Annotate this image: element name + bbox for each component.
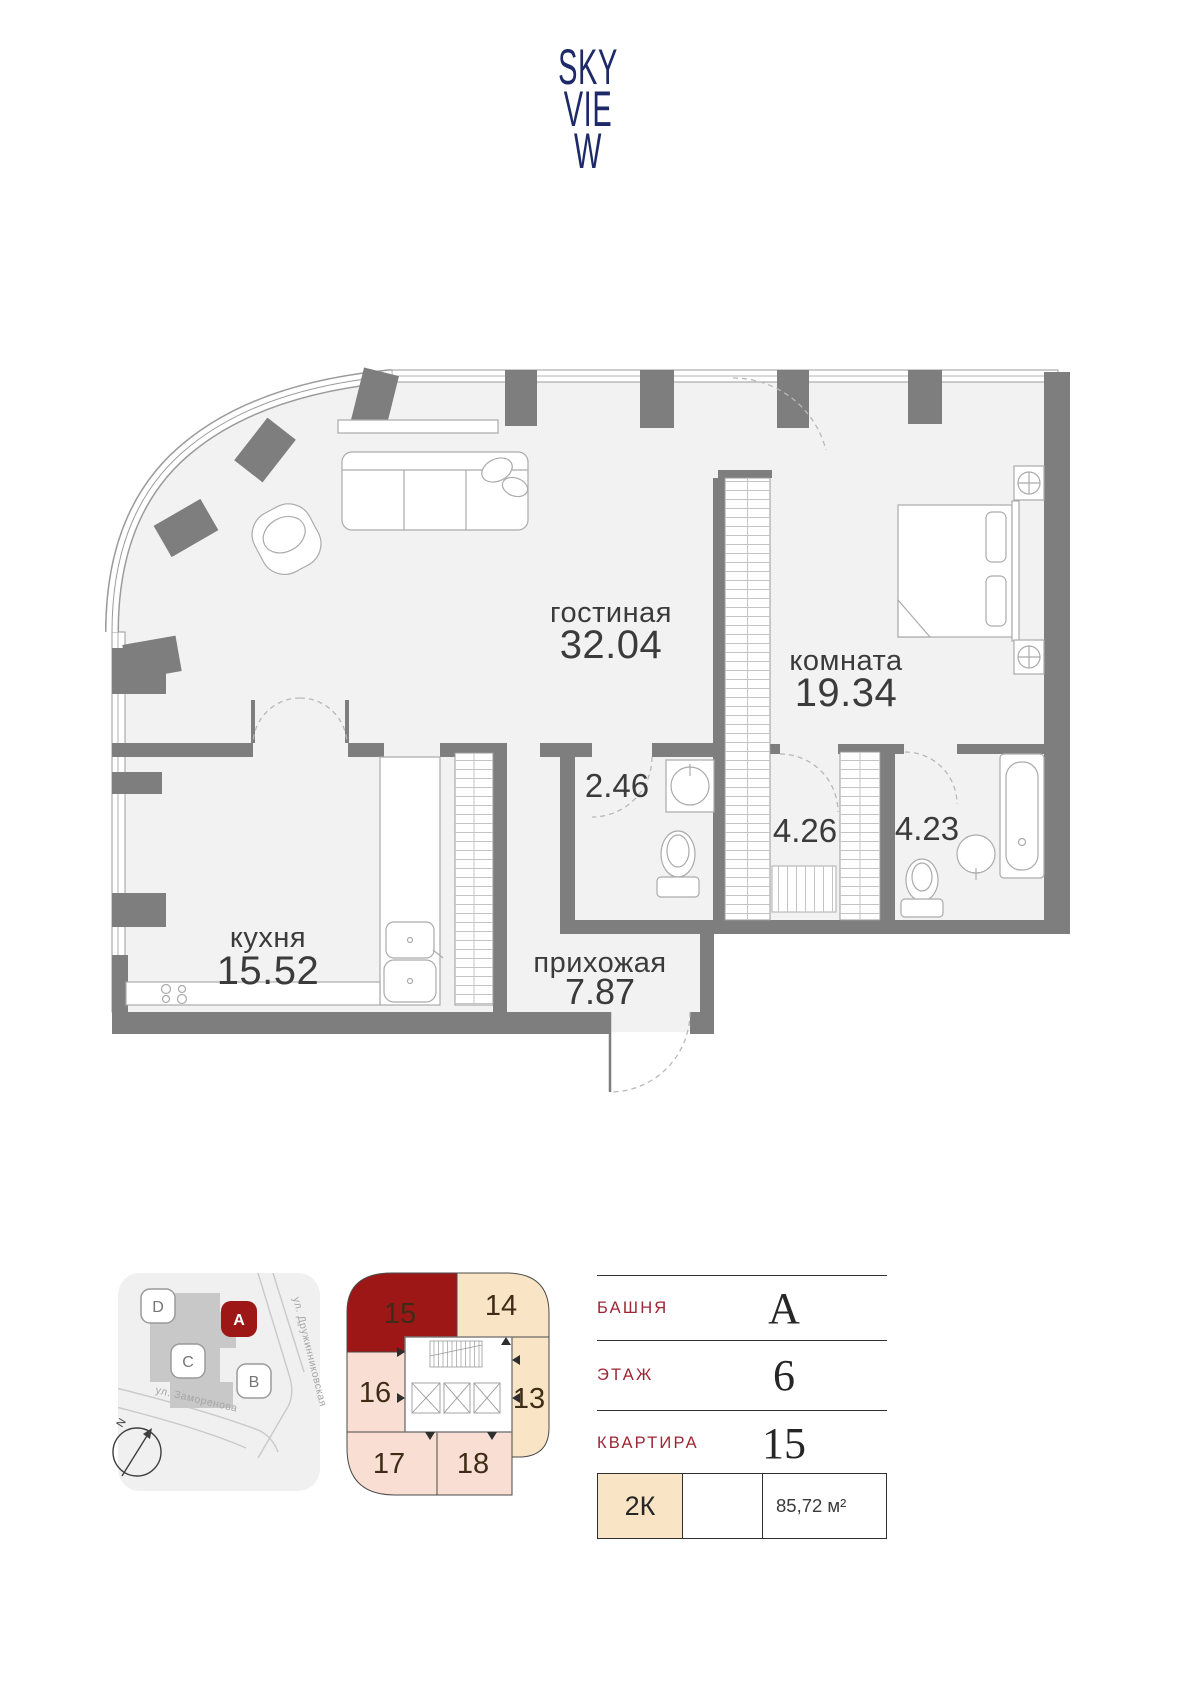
building-badge-b[interactable]: B: [237, 1364, 271, 1398]
table-row-apartment: КВАРТИРА 15: [597, 1410, 887, 1476]
elevators-icon: [412, 1383, 500, 1413]
apartment-type-badge: 2К: [598, 1474, 683, 1538]
tower-label: БАШНЯ: [597, 1299, 668, 1318]
svg-text:B: B: [249, 1374, 260, 1391]
building-core: [397, 1337, 520, 1440]
apartment-floor-plan: гостиная 32.04 комната 19.34 кухня 15.52…: [95, 330, 1085, 1100]
tower-value: А: [725, 1283, 843, 1334]
unit-number-16: 16: [359, 1377, 391, 1409]
table-row-tower: БАШНЯ А: [597, 1275, 887, 1340]
room-area-bathroom: 4.23: [895, 810, 959, 847]
total-area-value: 85,72 м²: [763, 1474, 886, 1538]
building-badge-a-selected[interactable]: A: [221, 1301, 257, 1337]
tv-console: [338, 420, 498, 433]
building-badge-c[interactable]: C: [171, 1344, 205, 1378]
svg-text:D: D: [152, 1299, 164, 1316]
floor-label: ЭТАЖ: [597, 1366, 653, 1385]
floor-value: 6: [725, 1350, 843, 1401]
room-area-hall: 7.87: [565, 971, 635, 1012]
building-badge-d[interactable]: D: [141, 1289, 175, 1323]
summary-box: 2К 85,72 м²: [597, 1473, 887, 1539]
logo-line-3: W: [544, 130, 632, 172]
room-area-wc: 2.46: [585, 767, 649, 804]
room-area-kitchen: 15.52: [217, 949, 320, 993]
apartment-label: КВАРТИРА: [597, 1434, 699, 1453]
skyview-logo: SKY VIE W: [512, 46, 664, 172]
apartment-details-table: БАШНЯ А ЭТАЖ 6 КВАРТИРА 15: [597, 1275, 887, 1476]
room-area-closet: 4.26: [773, 812, 837, 849]
svg-text:C: C: [182, 1354, 194, 1371]
svg-text:A: A: [233, 1312, 245, 1329]
table-row-floor: ЭТАЖ 6: [597, 1340, 887, 1410]
unit-number-13: 13: [513, 1383, 545, 1415]
summary-empty-cell: [683, 1474, 763, 1538]
unit-number-15: 15: [384, 1298, 416, 1330]
room-area-bedroom: 19.34: [795, 671, 898, 715]
unit-number-14: 14: [485, 1290, 517, 1322]
floor-plate: 15 14 16 13 17 18: [340, 1265, 565, 1505]
unit-number-17: 17: [373, 1448, 405, 1480]
bath-sink-icon: [957, 835, 995, 873]
unit-number-18: 18: [457, 1448, 489, 1480]
apartment-value: 15: [725, 1418, 843, 1469]
site-map: D A C B ул. Дружинниковская ул. Заморено…: [105, 1265, 335, 1500]
room-area-living: 32.04: [560, 623, 663, 667]
